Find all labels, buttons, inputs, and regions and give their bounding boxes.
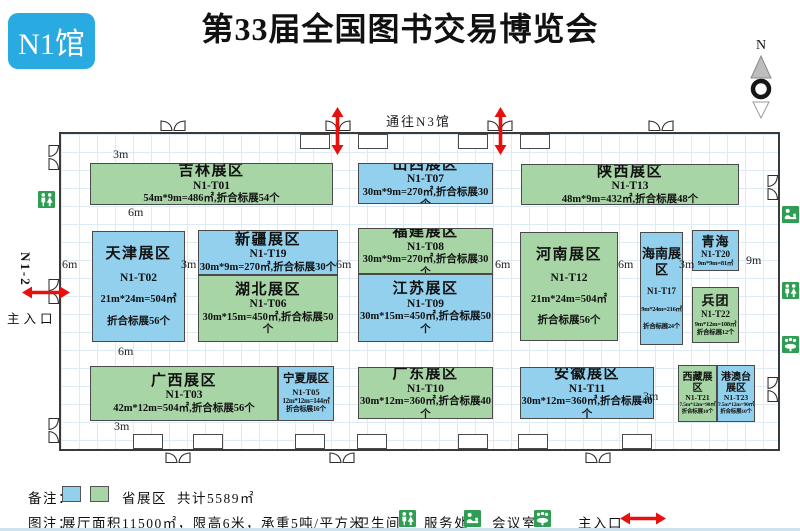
zone-spec: 30m*15m=450㎡,折合标展50个	[359, 311, 492, 336]
zone-spec2: 折合标展16个	[286, 405, 326, 413]
zone-henan: 河南展区 N1-T12 21m*24m=504㎡ 折合标展56个	[520, 232, 618, 341]
legend-green-swatch	[90, 486, 109, 502]
compass-icon	[749, 54, 773, 120]
zone-qinghai: 青海 N1-T20 9m*9m=81㎡	[692, 230, 739, 271]
zone-name: 西藏展区	[679, 372, 716, 394]
zone-name: 江苏展区	[392, 280, 458, 298]
zone-spec2: 折合标展12个	[697, 329, 735, 337]
door-icon	[585, 452, 611, 463]
wall-booth	[622, 434, 652, 449]
dimension-label: 3m	[181, 257, 196, 272]
zone-spec2: 折合标展10个	[720, 409, 752, 415]
wall-booth	[458, 134, 488, 149]
zone-name: 海南展区	[641, 246, 682, 277]
zone-code: N1-T19	[249, 248, 286, 262]
zone-spec: 9m*24m=216㎡	[641, 306, 681, 314]
zone-code: N1-T09	[407, 298, 444, 312]
zone-name: 吉林展区	[178, 163, 244, 180]
legend-province-zone-label: 省展区	[122, 487, 167, 507]
zone-name: 湖北展区	[235, 281, 301, 299]
zone-name: 山西展区	[392, 163, 458, 173]
zone-jilin: 吉林展区 N1-T01 54m*9m=486㎡,折合标展54个	[90, 163, 333, 205]
legend-blue-swatch	[62, 486, 81, 502]
dimension-label: 6m	[336, 257, 351, 272]
zone-spec: 9m*9m=81㎡	[698, 260, 733, 268]
zone-spec2: 折合标展56个	[107, 316, 170, 328]
zone-spec: 42m*12m=504㎡,折合标展56个	[113, 403, 255, 415]
main-entrance-arrow-icon	[620, 512, 666, 525]
dimension-label: 6m	[128, 205, 143, 220]
toilet-icon	[38, 191, 55, 208]
zone-spec2: 折合标展24个	[643, 323, 680, 331]
dimension-label: 6m	[118, 344, 133, 359]
wall-booth	[458, 434, 488, 449]
page: N1馆 第33届全国图书交易博览会 N 通往N3馆	[0, 0, 800, 531]
zone-code: N1-T13	[611, 180, 648, 194]
meeting-room-icon	[534, 510, 551, 527]
compass-north-label: N	[748, 38, 774, 54]
zone-guangdong: 广东展区 N1-T10 30m*12m=360㎡,折合标展40个	[358, 367, 493, 419]
zone-code: N1-T20	[701, 249, 730, 260]
zone-spec: 30m*9m=270㎡,折合标展30个	[359, 187, 492, 204]
zone-code: N1-T22	[701, 309, 730, 320]
zone-name: 陕西展区	[597, 164, 663, 180]
wall-booth	[520, 134, 550, 149]
dimension-label: 3m	[643, 389, 658, 404]
zone-spec: 21m*24m=504㎡	[101, 294, 177, 306]
door-icon	[648, 120, 674, 131]
zone-bingtuan: 兵团 N1-T22 9m*12m=108㎡ 折合标展12个	[692, 287, 739, 343]
passage-arrow-icon	[331, 107, 344, 155]
zone-name: 广东展区	[392, 367, 458, 383]
zone-jiangsu: 江苏展区 N1-T09 30m*15m=450㎡,折合标展50个	[358, 274, 493, 342]
zone-name: 青海	[701, 234, 729, 249]
zone-spec: 30m*12m=360㎡,折合标展40个	[521, 396, 653, 419]
zone-name: 宁夏展区	[283, 373, 329, 387]
zone-code: N1-T02	[120, 272, 157, 286]
zone-spec: 30m*9m=270㎡,折合标展30个	[359, 254, 492, 274]
zone-code: N1-T06	[249, 298, 286, 312]
zone-name: 港澳台展区	[718, 372, 754, 394]
zone-spec: 30m*15m=450㎡,折合标展50个	[199, 312, 337, 337]
zone-name: 福建展区	[392, 228, 458, 241]
zone-code: N1-T12	[550, 272, 587, 286]
main-entrance-arrow-icon	[22, 286, 70, 299]
zone-code: N1-T10	[407, 383, 444, 397]
zone-xinjiang: 新疆展区 N1-T19 30m*9m=270㎡,折合标展30个	[198, 230, 338, 275]
zone-guangxi: 广西展区 N1-T03 42m*12m=504㎡,折合标展56个	[90, 366, 278, 421]
zone-spec: 30m*12m=360㎡,折合标展40个	[359, 396, 492, 419]
wall-booth	[358, 134, 388, 149]
service-desk-icon	[782, 206, 799, 223]
compass: N	[748, 38, 774, 125]
zone-name: 新疆展区	[235, 231, 301, 249]
wall-booth	[300, 134, 330, 149]
zone-hubei: 湖北展区 N1-T06 30m*15m=450㎡,折合标展50个	[198, 275, 338, 342]
dimension-label: 9m	[746, 253, 761, 268]
zone-name: 广西展区	[151, 372, 217, 390]
door-icon	[49, 418, 60, 444]
door-icon	[160, 120, 186, 131]
zone-code: N1-T08	[407, 241, 444, 255]
dimension-label: 3m	[113, 147, 128, 162]
meeting-room-icon	[782, 336, 799, 353]
door-icon	[49, 145, 60, 171]
wall-booth	[193, 434, 223, 449]
service-desk-icon	[464, 510, 481, 527]
zone-name: 兵团	[701, 293, 729, 308]
zone-code: N1-T01	[193, 180, 230, 194]
zone-code: N1-T07	[407, 173, 444, 187]
toilet-icon	[782, 282, 799, 299]
zone-hainan: 海南展区 N1-T17 9m*24m=216㎡ 折合标展24个	[640, 232, 683, 345]
passage-arrow-icon	[494, 107, 507, 155]
zone-name: 安徽展区	[554, 367, 620, 383]
zone-code: N1-T05	[292, 387, 319, 397]
zone-fujian: 福建展区 N1-T08 30m*9m=270㎡,折合标展30个	[358, 228, 493, 274]
zone-name: 河南展区	[536, 246, 602, 264]
zone-name: 天津展区	[105, 245, 171, 263]
zone-code: N1-T11	[569, 383, 605, 397]
door-icon	[165, 452, 191, 463]
wall-booth	[295, 434, 325, 449]
zone-anhui: 安徽展区 N1-T11 30m*12m=360㎡,折合标展40个	[520, 367, 654, 419]
wall-booth	[133, 434, 163, 449]
zone-spec: 30m*9m=270㎡,折合标展30个	[200, 262, 336, 274]
zone-code: N1-T03	[165, 389, 202, 403]
legend-total-area: 共计5589㎡	[177, 487, 255, 507]
dimension-label: 3m	[679, 257, 694, 272]
wall-booth	[357, 434, 387, 449]
zone-spec: 21m*24m=504㎡	[531, 294, 607, 306]
wall-booth	[518, 434, 548, 449]
dimension-label: 6m	[618, 257, 633, 272]
zone-shaanxi: 陕西展区 N1-T13 48m*9m=432㎡,折合标展48个	[521, 164, 739, 205]
dimension-label: 3m	[114, 419, 129, 434]
dimension-label: 6m	[62, 257, 77, 272]
left-entrance-code: N1-2	[17, 252, 33, 287]
zone-code: N1-T17	[647, 286, 676, 297]
zone-ningxia: 宁夏展区 N1-T05 12m*12m=144㎡ 折合标展16个	[278, 366, 334, 421]
zone-spec: 9m*12m=108㎡	[695, 321, 737, 329]
zone-gangaotai: 港澳台展区 N1-T23 7.5m*12m=90㎡ 折合标展10个	[717, 365, 755, 422]
door-icon	[329, 452, 355, 463]
zone-shanxi: 山西展区 N1-T07 30m*9m=270㎡,折合标展30个	[358, 163, 493, 204]
door-icon	[768, 175, 779, 201]
page-title: 第33届全国图书交易博览会	[0, 4, 800, 50]
zone-xizang: 西藏展区 N1-T21 7.5m*12m=90㎡ 折合标展10个	[678, 365, 717, 422]
zone-spec2: 折合标展56个	[538, 315, 601, 327]
corridor-label: 通往N3馆	[386, 111, 451, 130]
door-icon	[768, 377, 779, 403]
dimension-label: 6m	[495, 257, 510, 272]
zone-spec2: 折合标展10个	[682, 409, 714, 415]
toilet-icon	[399, 510, 416, 527]
left-entrance-label: 主入口	[7, 308, 57, 327]
zone-spec: 48m*9m=432㎡,折合标展48个	[562, 194, 698, 205]
zone-spec: 54m*9m=486㎡,折合标展54个	[143, 193, 279, 205]
zone-tianjin: 天津展区 N1-T02 21m*24m=504㎡ 折合标展56个	[92, 231, 185, 342]
